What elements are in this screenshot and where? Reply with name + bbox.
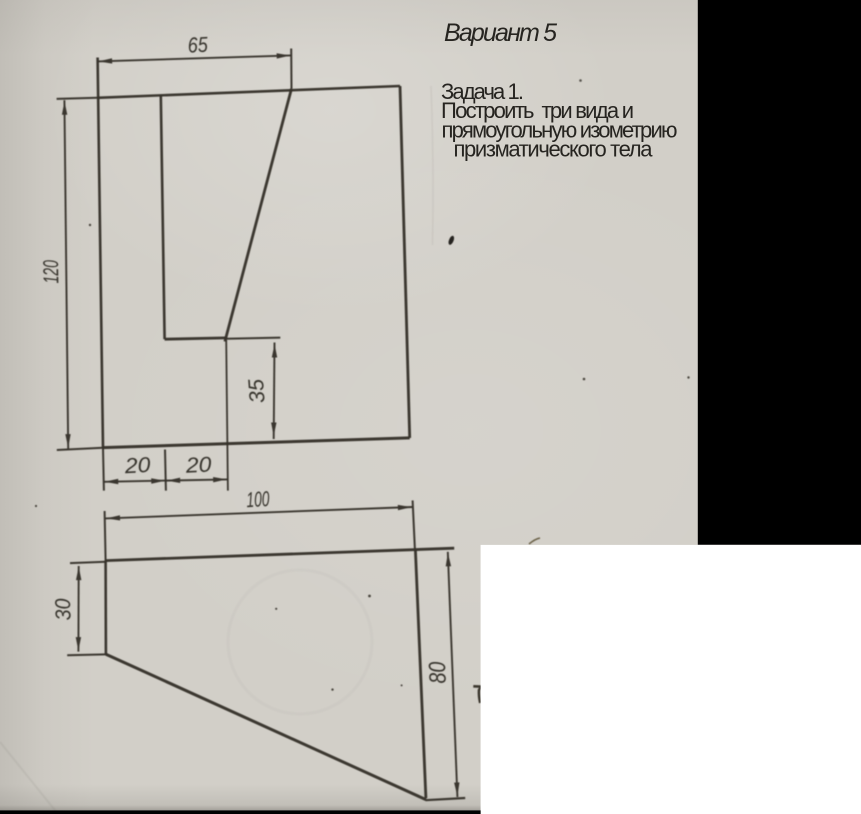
svg-text:призматического тела: призматического тела bbox=[454, 137, 654, 162]
svg-text:30: 30 bbox=[51, 598, 76, 621]
svg-text:80: 80 bbox=[424, 661, 451, 684]
svg-text:65: 65 bbox=[187, 33, 209, 58]
svg-text:Вариант 5: Вариант 5 bbox=[444, 19, 557, 47]
svg-text:20: 20 bbox=[184, 452, 212, 477]
svg-text:100: 100 bbox=[246, 487, 270, 512]
svg-text:20: 20 bbox=[123, 453, 151, 478]
svg-text:120: 120 bbox=[39, 260, 63, 284]
svg-text:35: 35 bbox=[244, 377, 270, 404]
